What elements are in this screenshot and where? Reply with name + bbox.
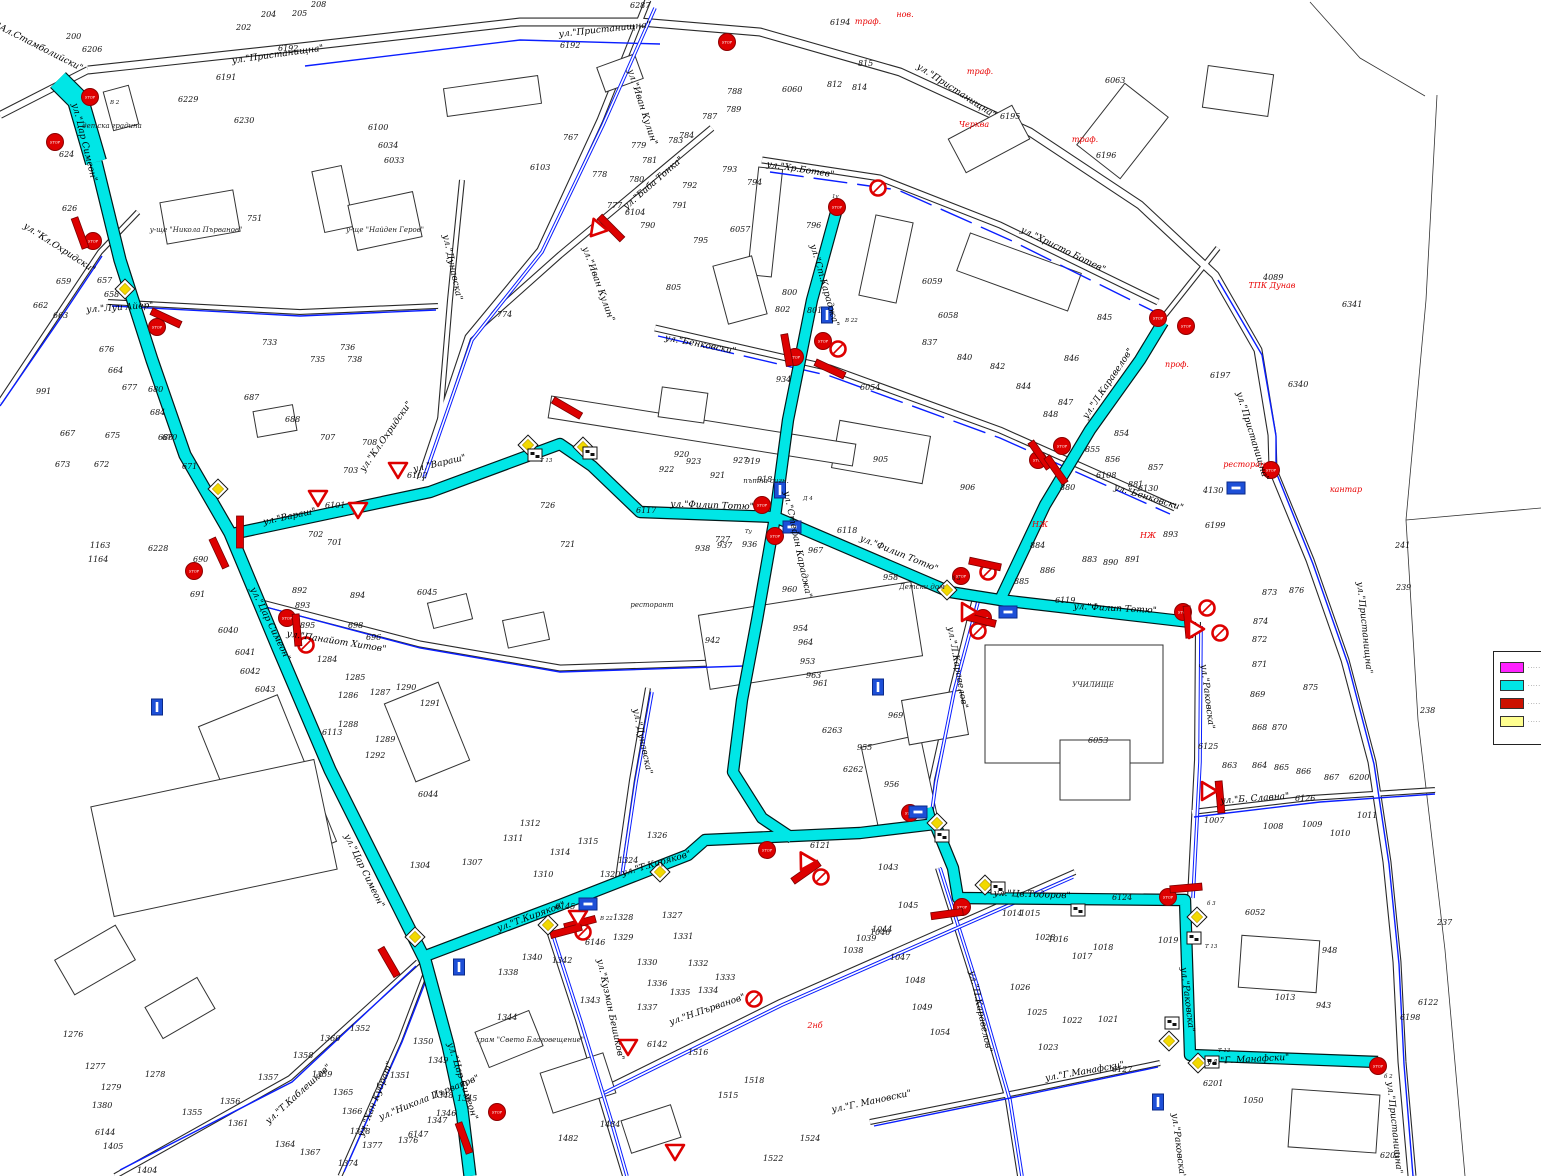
parcel-number: 780: [629, 175, 644, 184]
parcel-number: 1049: [912, 1003, 932, 1012]
parcel-number: 663: [53, 311, 68, 320]
parcel-number: 696: [366, 633, 381, 642]
parcel-number: 6200: [1349, 773, 1369, 782]
parcel-number: 1054: [930, 1028, 950, 1037]
parcel-number: 626: [62, 204, 77, 213]
parcel-number: 1164: [88, 555, 108, 564]
parcel-number: 943: [1316, 1001, 1331, 1010]
table-sign-mark: [1168, 1020, 1172, 1023]
parcel-number: 1163: [90, 541, 110, 550]
parcel-number: 1334: [698, 986, 718, 995]
table-sign-mark: [531, 452, 535, 455]
parcel-number: 1380: [92, 1101, 112, 1110]
parcel-number: 905: [873, 455, 888, 464]
blue-line: [874, 1067, 1158, 1126]
sign-code-label: Т 13: [1218, 1048, 1231, 1054]
parcel-number: 1404: [137, 1166, 157, 1175]
parcel-number: 1340: [522, 953, 542, 962]
area-label: ресторант: [630, 601, 674, 609]
parcel-number: 865: [1274, 763, 1289, 772]
table-sign-mark: [1074, 907, 1078, 910]
parcel-number: 6195: [1000, 112, 1020, 121]
building-outline: [503, 612, 550, 648]
parcel-number: 6124: [1112, 893, 1132, 902]
parcel-number: 1350: [413, 1037, 433, 1046]
street-name-label: ул."Ал.Стамболийски": [0, 13, 85, 73]
parcel-number: 795: [693, 236, 708, 245]
sign-code-label: В 2: [109, 100, 120, 106]
parcel-number: 6198: [1400, 1013, 1420, 1022]
parcel-number: 6206: [82, 45, 102, 54]
parcel-number: 802: [775, 305, 790, 314]
stop-sign-text: STOP: [85, 95, 96, 99]
parcel-number: 202: [235, 23, 251, 32]
parcel-number: 796: [806, 221, 821, 230]
yield-sign-icon[interactable]: [666, 1145, 684, 1160]
parcel-number: 793: [722, 165, 737, 174]
parcel-number: 1026: [1010, 983, 1030, 992]
parcel-number: 6054: [860, 383, 880, 392]
legend-item: ...........: [1500, 676, 1541, 694]
parcel-number: 6230: [234, 116, 254, 125]
parcel-number: 856: [1105, 455, 1120, 464]
sign-code-label: В 22: [599, 916, 613, 922]
parcel-number: 1028: [1035, 933, 1055, 942]
yield-sign-icon[interactable]: [389, 463, 407, 478]
parcel-number: 733: [262, 338, 277, 347]
parcel-number: 1335: [670, 988, 690, 997]
table-sign-icon[interactable]: [583, 447, 597, 459]
parcel-number: 664: [108, 366, 123, 375]
parcel-number: 1405: [103, 1142, 123, 1151]
parcel-number: 1010: [1330, 829, 1350, 838]
parcel-number: 1007: [1204, 816, 1225, 825]
parcel-number: 942: [705, 636, 720, 645]
legend-item: ...........: [1500, 712, 1541, 730]
street-name-label: ул."Хан Кубрат": [355, 1060, 396, 1139]
area-label: храм "Свето Благовещение": [476, 1036, 584, 1044]
parcel-number: 1019: [1158, 936, 1178, 945]
parcel-number: 659: [56, 277, 71, 286]
parcel-number: 6228: [148, 544, 168, 553]
parcel-number: 788: [727, 87, 742, 96]
parcel-number: 6063: [1105, 76, 1125, 85]
table-sign-mark: [943, 836, 947, 839]
sign-code-label: В 22: [844, 318, 858, 324]
legend-swatch-cyan: [1500, 680, 1524, 691]
parcel-number: 6118: [837, 526, 857, 535]
parcel-number: 6103: [530, 163, 550, 172]
closure-bar-icon[interactable]: [71, 217, 89, 249]
blue-info-sign-bar: [914, 811, 923, 814]
red-annotation-label: нов.: [896, 10, 913, 19]
sign-code-label: Д 4: [802, 496, 813, 502]
parcel-number: 1518: [744, 1076, 764, 1085]
parcel-number: 241: [1394, 541, 1410, 550]
yield-sign-icon[interactable]: [1202, 782, 1217, 800]
parcel-number: 1276: [63, 1030, 83, 1039]
parcel-number: 844: [1016, 382, 1031, 391]
red-annotation-label: НЖ: [1031, 520, 1049, 529]
cadastral-map-page: STOPSTOPSTOPSTOPSTOPSTOPSTOPSTOPSTOPSTOP…: [0, 0, 1541, 1176]
parcel-number: 6341: [1342, 300, 1362, 309]
parcel-number: 1015: [1020, 909, 1040, 918]
parcel-number: 869: [1250, 690, 1265, 699]
street-name-label: ул."Г. Мановски": [830, 1089, 912, 1116]
parcel-number: 1352: [350, 1024, 370, 1033]
parcel-number: 953: [800, 657, 815, 666]
legend-label: ...........: [1528, 682, 1541, 688]
parcel-number: 6058: [938, 311, 958, 320]
parcel-number: 6144: [95, 1128, 115, 1137]
parcel-number: 1358: [293, 1051, 313, 1060]
stop-sign-text: STOP: [1057, 444, 1068, 448]
parcel-number: 1022: [1062, 1016, 1082, 1025]
parcel-number: 964: [798, 638, 813, 647]
parcel-number: 1336: [647, 979, 667, 988]
parcel-number: 1324: [618, 856, 638, 865]
parcel-number: 6060: [782, 85, 802, 94]
parcel-number: 6196: [1096, 151, 1116, 160]
stop-sign-text: STOP: [1153, 316, 1164, 320]
parcel-number: 956: [884, 780, 899, 789]
parcel-number: 873: [1262, 588, 1277, 597]
parcel-number: 1332: [688, 959, 708, 968]
parcel-number: 936: [742, 540, 757, 549]
parcel-number: 624: [59, 150, 74, 159]
building-outline: [160, 190, 240, 244]
parcel-number: 961: [813, 679, 828, 688]
parcel-number: 934: [776, 375, 791, 384]
parcel-number: 1314: [550, 848, 570, 857]
parcel-number: 676: [99, 345, 114, 354]
parcel-number: 1048: [905, 976, 925, 985]
stop-sign-text: STOP: [1181, 324, 1192, 328]
parcel-number: 954: [793, 624, 808, 633]
parcel-number: 815: [858, 59, 873, 68]
parcel-number: 4130: [1202, 486, 1223, 495]
table-sign-mark: [938, 833, 942, 836]
map-canvas[interactable]: STOPSTOPSTOPSTOPSTOPSTOPSTOPSTOPSTOPSTOP…: [0, 0, 1541, 1176]
parcel-number: 794: [747, 178, 762, 187]
sign-code-label: Т 13: [1205, 944, 1218, 950]
parcel-number: 1360: [320, 1034, 340, 1043]
parcel-number: 1291: [420, 699, 440, 708]
parcel-number: 1284: [317, 655, 337, 664]
parcel-number: 1311: [503, 834, 523, 843]
parcel-number: 866: [1296, 767, 1311, 776]
stop-sign-text: STOP: [189, 569, 200, 573]
parcel-number: 698: [348, 621, 363, 630]
parcel-boundary-line: [1406, 508, 1541, 520]
parcel-number: 864: [1252, 761, 1267, 770]
parcel-number: 1365: [333, 1088, 353, 1097]
parcel-number: 870: [1272, 723, 1287, 732]
table-sign-mark: [1173, 1023, 1177, 1026]
parcel-number: 6119: [1055, 596, 1075, 605]
red-annotation-label: ресторант: [1223, 460, 1273, 469]
red-annotation-label: траф.: [1072, 135, 1098, 144]
table-sign-mark: [586, 450, 590, 453]
parcel-number: 6340: [1288, 380, 1308, 389]
parcel-number: 1515: [718, 1091, 738, 1100]
parcel-number: 868: [1252, 723, 1267, 732]
parcel-number: 6053: [1088, 736, 1108, 745]
building-outline: [444, 76, 542, 117]
parcel-number: 6113: [322, 728, 342, 737]
table-sign-icon[interactable]: [1165, 1017, 1179, 1029]
parcel-number: 6101: [325, 501, 345, 510]
parcel-number: 1338: [498, 968, 518, 977]
legend-label: ...........: [1528, 664, 1541, 670]
parcel-number: 1351: [390, 1071, 410, 1080]
parcel-number: 1285: [345, 673, 365, 682]
red-annotation-label: ТПК Дунав: [1249, 281, 1296, 290]
parcel-number: 6194: [830, 18, 850, 27]
parcel-number: 6197: [1210, 371, 1231, 380]
street-name-label: ул."Кузман Бешиков": [594, 957, 625, 1061]
parcel-number: 1290: [396, 683, 416, 692]
stop-sign-text: STOP: [770, 534, 781, 538]
red-annotation-label: НЖ: [1139, 531, 1157, 540]
parcel-number: 657: [97, 276, 113, 285]
closure-bar-icon[interactable]: [209, 537, 229, 569]
parcel-number: 1310: [533, 870, 553, 879]
parcel-number: 778: [592, 170, 607, 179]
parcel-number: 6191: [216, 73, 236, 82]
parcel-number: 885: [1014, 577, 1029, 586]
parcel-number: 842: [990, 362, 1005, 371]
building-outline: [1202, 66, 1273, 117]
stop-sign-text: STOP: [757, 503, 768, 507]
parcel-number: 6043: [255, 685, 275, 694]
map-legend: ........... ........... ........... ....…: [1493, 651, 1541, 745]
parcel-number: 200: [65, 32, 81, 41]
parcel-number: 1013: [1275, 993, 1295, 1002]
stop-sign-text: STOP: [762, 848, 773, 852]
parcel-number: 237: [1436, 918, 1453, 927]
parcel-number: 837: [922, 338, 938, 347]
parcel-number: 687: [244, 393, 260, 402]
parcel-number: 1356: [220, 1097, 240, 1106]
street-name-label: ул."Иван Кулин": [579, 245, 616, 324]
parcel-number: 208: [310, 0, 326, 9]
stop-sign-text: STOP: [50, 140, 61, 144]
parcel-number: 800: [782, 288, 797, 297]
building-outline: [145, 977, 215, 1038]
blue-info-sign-bar: [584, 903, 593, 906]
closure-bar-icon[interactable]: [931, 908, 964, 919]
parcel-number: 919: [745, 457, 760, 466]
parcel-number: 690: [193, 555, 208, 564]
parcel-number: 702: [308, 530, 323, 539]
parcel-number: 955: [857, 743, 872, 752]
sign-code-label: 1v: [832, 194, 839, 200]
parcel-number: 805: [666, 283, 681, 292]
parcel-number: 1347: [427, 1116, 448, 1125]
parcel-number: 840: [957, 353, 972, 362]
parcel-number: 920: [674, 450, 689, 459]
parcel-number: 703: [343, 466, 358, 475]
parcel-number: 1344: [497, 1013, 517, 1022]
table-sign-icon[interactable]: [1071, 904, 1085, 916]
parcel-number: 884: [1030, 541, 1045, 550]
parcel-number: 6034: [378, 141, 398, 150]
parcel-number: 906: [960, 483, 975, 492]
parcel-number: 1038: [843, 946, 863, 955]
parcel-number: 1484: [600, 1120, 620, 1129]
closure-bar-icon[interactable]: [1170, 883, 1202, 893]
parcel-number: 891: [1125, 555, 1140, 564]
area-label: Детски дом: [898, 583, 945, 591]
legend-label: ...........: [1528, 718, 1541, 724]
parcel-number: 239: [1395, 583, 1411, 592]
parcel-number: 872: [1252, 635, 1267, 644]
parcel-number: 1357: [258, 1073, 279, 1082]
parcel-number: 677: [122, 383, 138, 392]
parcel-number: 1331: [673, 932, 693, 941]
parcel-number: 1017: [1072, 952, 1093, 961]
parcel-number: 1342: [552, 956, 572, 965]
parcel-number: 6201: [1203, 1079, 1223, 1088]
parcel-number: 1011: [1357, 811, 1377, 820]
parcel-number: 1045: [898, 901, 918, 910]
parcel-number: 791: [672, 201, 687, 210]
parcel-number: 6122: [1418, 998, 1438, 1007]
parcel-number: 1377: [362, 1141, 383, 1150]
parcel-number: 6117: [636, 506, 657, 515]
table-sign-mark: [536, 455, 540, 458]
parcel-number: 1009: [1302, 820, 1322, 829]
building-outline: [384, 682, 469, 782]
parcel-number: 6040: [218, 626, 238, 635]
parcel-number: 6042: [240, 667, 260, 676]
parcel-number: 801: [807, 306, 822, 315]
red-annotation-label: траф.: [855, 17, 881, 26]
parcel-number: 1315: [578, 837, 598, 846]
sign-code-label: Т 13: [540, 458, 553, 464]
parcel-number: 671: [182, 462, 197, 471]
parcel-number: 727: [715, 535, 731, 544]
area-label: УЧИЛИЩЕ: [1072, 681, 1114, 689]
parcel-number: 883: [1082, 555, 1097, 564]
closure-bar-icon[interactable]: [237, 516, 244, 548]
legend-item: ...........: [1500, 694, 1541, 712]
table-sign-icon[interactable]: [935, 830, 949, 842]
parcel-number: 1304: [410, 861, 430, 870]
stop-sign-text: STOP: [282, 616, 293, 620]
parcel-number: 672: [94, 460, 109, 469]
parcel-number: 667: [60, 429, 76, 438]
area-label: пътна сигн.: [743, 477, 789, 485]
area-label: у-ще "Никола Първанов": [149, 226, 243, 234]
parcel-number: 894: [350, 591, 365, 600]
stop-sign-text: STOP: [1373, 1064, 1384, 1068]
one-way-sign-bar: [779, 485, 782, 495]
parcel-number: 1349: [428, 1056, 448, 1065]
street-name-label: ул."Дунавска": [440, 233, 464, 302]
stop-sign-text: STOP: [818, 339, 829, 343]
stop-sign-text: STOP: [1163, 895, 1174, 899]
parcel-number: 871: [1252, 660, 1267, 669]
parcel-number: 6125: [1198, 742, 1218, 751]
building-outline: [91, 760, 337, 917]
parcel-number: 848: [1043, 410, 1058, 419]
parcel-number: 6044: [418, 790, 438, 799]
parcel-number: 6121: [810, 841, 830, 850]
parcel-number: 6263: [822, 726, 842, 735]
legend-swatch-magenta: [1500, 662, 1524, 673]
parcel-number: 1364: [275, 1140, 295, 1149]
parcel-number: 1337: [637, 1003, 658, 1012]
parcel-number: 845: [1097, 313, 1112, 322]
parcel-number: 1516: [688, 1048, 708, 1057]
parcel-number: 1289: [375, 735, 395, 744]
closure-bar-icon[interactable]: [378, 946, 400, 977]
parcel-number: 6033: [384, 156, 404, 165]
parcel-number: 6041: [235, 648, 255, 657]
parcel-number: 1286: [338, 691, 358, 700]
legend-swatch-yellow: [1500, 716, 1524, 727]
parcel-number: 922: [659, 465, 674, 474]
parcel-number: 680: [148, 385, 163, 394]
building-outline: [427, 594, 472, 629]
parcel-number: 1333: [715, 973, 735, 982]
parcel-number: 1376: [398, 1136, 418, 1145]
table-sign-icon[interactable]: [1187, 932, 1201, 944]
red-annotation-label: Черква: [959, 120, 989, 129]
highlighted-street-kiryakov-todorov[interactable]: [420, 824, 1378, 1062]
one-way-sign-bar: [1157, 1097, 1160, 1107]
parcel-number: 6057: [730, 225, 751, 234]
parcel-number: 1320: [600, 870, 620, 879]
blue-info-sign-bar: [1232, 487, 1241, 490]
building-outline: [658, 387, 708, 423]
parcel-number: 958: [883, 573, 898, 582]
parcel-number: 751: [247, 214, 262, 223]
stop-sign-text: STOP: [832, 205, 843, 209]
parcel-number: 938: [695, 544, 710, 553]
parcel-number: 736: [340, 343, 355, 352]
parcel-number: 886: [1040, 566, 1055, 575]
parcel-number: 893: [1163, 530, 1178, 539]
parcel-number: 721: [560, 540, 575, 549]
parcel-number: 205: [291, 9, 307, 18]
one-way-sign-bar: [877, 682, 880, 692]
parcel-number: 960: [782, 585, 797, 594]
table-sign-mark: [591, 453, 595, 456]
parcel-number: 6229: [178, 95, 198, 104]
parcel-number: 1366: [342, 1107, 362, 1116]
parcel-number: 1047: [890, 953, 911, 962]
parcel-number: 6108: [1096, 471, 1116, 480]
parcel-number: 784: [679, 131, 694, 140]
parcel-number: 1524: [800, 1134, 820, 1143]
parcel-number: 792: [682, 181, 697, 190]
parcel-number: 890: [1103, 558, 1118, 567]
street-name-label: ул."Т.Киряков": [495, 900, 567, 934]
parcel-number: 1050: [1243, 1096, 1263, 1105]
parcel-number: 6142: [647, 1040, 667, 1049]
parcel-number: 1355: [182, 1108, 202, 1117]
parcel-number: 726: [540, 501, 555, 510]
stop-sign-text: STOP: [492, 1110, 503, 1114]
parcel-number: 6045: [417, 588, 437, 597]
parcel-number: 1374: [338, 1159, 358, 1168]
parcel-number: 675: [105, 431, 120, 440]
parcel-number: 1287: [370, 688, 391, 697]
stop-sign-text: STOP: [88, 239, 99, 243]
